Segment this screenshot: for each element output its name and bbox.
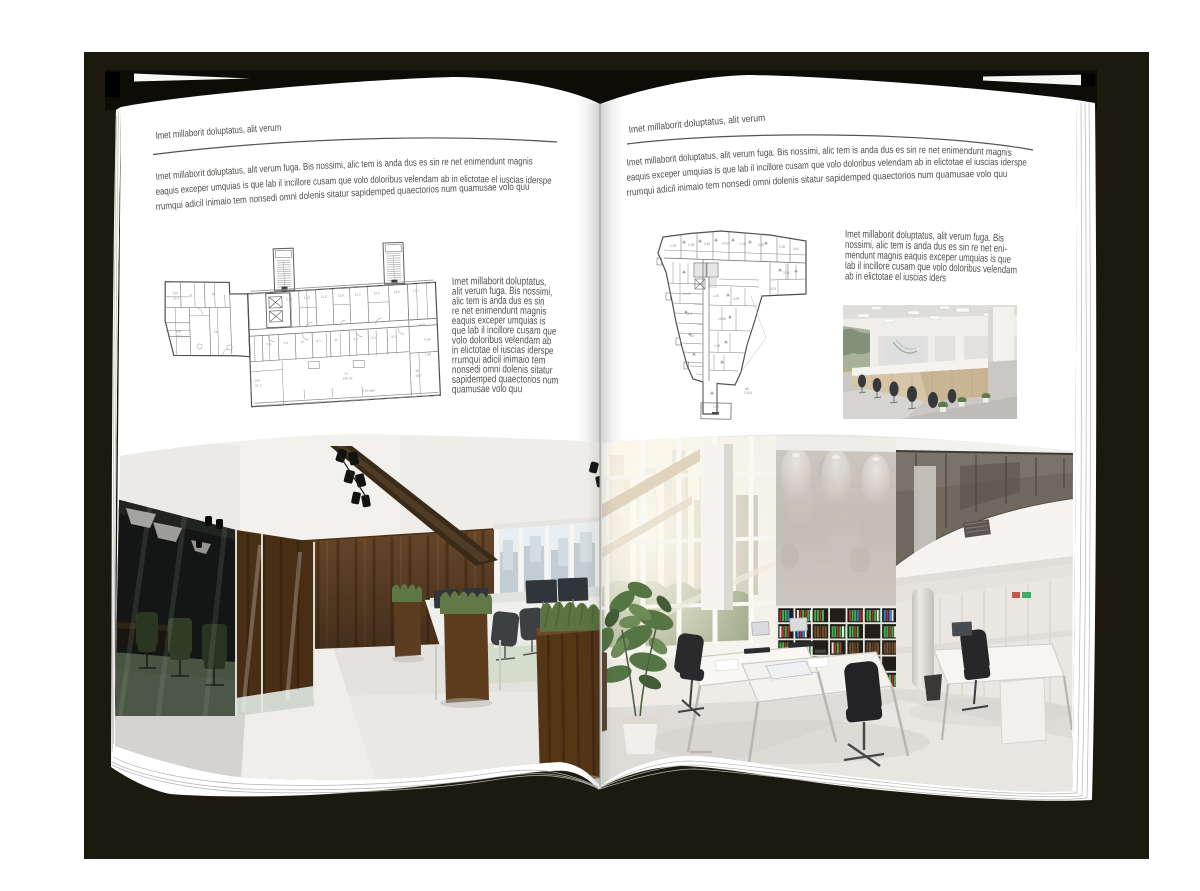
svg-text:1.09: 1.09 bbox=[713, 405, 719, 409]
svg-text:50.7: 50.7 bbox=[416, 374, 423, 378]
svg-text:1.09: 1.09 bbox=[779, 245, 785, 249]
svg-text:4.09: 4.09 bbox=[733, 297, 739, 301]
svg-text:206: 206 bbox=[173, 291, 179, 295]
svg-text:36: 36 bbox=[415, 369, 419, 373]
svg-text:4.08: 4.08 bbox=[419, 323, 426, 327]
svg-text:31.7: 31.7 bbox=[255, 383, 262, 387]
svg-text:14.09: 14.09 bbox=[683, 292, 691, 296]
svg-text:2.6: 2.6 bbox=[283, 341, 288, 345]
svg-text:12.0: 12.0 bbox=[686, 312, 692, 316]
svg-text:14.66: 14.66 bbox=[718, 317, 726, 321]
svg-text:10: 10 bbox=[334, 338, 338, 342]
svg-text:11.3: 11.3 bbox=[355, 292, 361, 296]
svg-text:1.40: 1.40 bbox=[425, 352, 432, 356]
svg-text:26: 26 bbox=[189, 294, 193, 298]
svg-text:1:100: 1:100 bbox=[744, 391, 752, 395]
svg-text:32: 32 bbox=[212, 292, 216, 296]
svg-text:15.5: 15.5 bbox=[374, 291, 381, 295]
svg-text:24.6: 24.6 bbox=[394, 290, 401, 294]
svg-text:1.08: 1.08 bbox=[740, 242, 746, 246]
svg-text:140.92: 140.92 bbox=[343, 376, 353, 380]
svg-text:quamusae volo quu: quamusae volo quu bbox=[452, 383, 523, 396]
svg-text:1.09: 1.09 bbox=[670, 244, 676, 248]
svg-text:1.40: 1.40 bbox=[713, 294, 719, 298]
svg-text:11.8: 11.8 bbox=[321, 295, 327, 299]
svg-text:2 об зміт: 2 об зміт bbox=[362, 388, 376, 392]
svg-text:2.04: 2.04 bbox=[783, 271, 789, 275]
svg-text:51: 51 bbox=[344, 371, 348, 375]
svg-text:2.70: 2.70 bbox=[286, 297, 293, 301]
svg-text:12.6: 12.6 bbox=[173, 296, 180, 300]
svg-text:14.09: 14.09 bbox=[722, 242, 730, 246]
svg-text:206: 206 bbox=[176, 329, 182, 333]
svg-text:4.6: 4.6 bbox=[353, 337, 358, 341]
svg-text:1.08: 1.08 bbox=[688, 243, 694, 247]
svg-text:1.45: 1.45 bbox=[704, 242, 710, 246]
svg-text:5.84: 5.84 bbox=[424, 337, 431, 341]
svg-text:26: 26 bbox=[214, 330, 218, 334]
svg-text:13.6: 13.6 bbox=[338, 293, 345, 297]
svg-text:5.49: 5.49 bbox=[758, 243, 764, 247]
svg-text:29a: 29a bbox=[255, 378, 261, 382]
svg-text:1.10: 1.10 bbox=[304, 296, 311, 300]
svg-text:6.3: 6.3 bbox=[371, 336, 376, 340]
svg-text:16.0: 16.0 bbox=[793, 247, 799, 251]
svg-text:17.2: 17.2 bbox=[413, 289, 420, 293]
svg-text:1.09: 1.09 bbox=[714, 344, 720, 348]
svg-text:12.5: 12.5 bbox=[770, 287, 776, 291]
svg-text:4.3: 4.3 bbox=[391, 335, 396, 339]
svg-text:2.9: 2.9 bbox=[266, 342, 271, 346]
svg-text:ab in elictotae el iuscias ide: ab in elictotae el iuscias iders bbox=[845, 270, 946, 284]
svg-text:6.1: 6.1 bbox=[316, 339, 321, 343]
svg-text:5.0: 5.0 bbox=[690, 334, 695, 338]
svg-text:12: 12 bbox=[300, 340, 304, 344]
svg-text:40.2: 40.2 bbox=[176, 334, 183, 338]
